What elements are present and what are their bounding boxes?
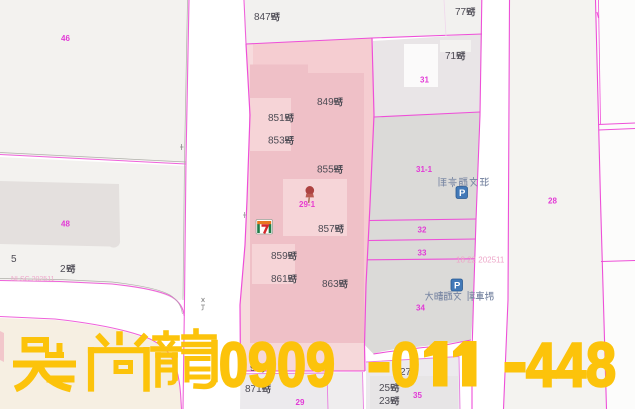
svg-text:857: 857 [318,224,335,235]
svg-text:847: 847 [254,12,271,23]
svg-text:48: 48 [61,220,70,229]
svg-text:2: 2 [60,264,66,275]
svg-text:71: 71 [445,51,457,62]
svg-text:NLSC 202511: NLSC 202511 [11,276,55,283]
svg-text:859: 859 [271,251,288,262]
svg-text:P: P [454,281,461,292]
svg-text:855: 855 [317,165,334,176]
svg-text:29-1: 29-1 [299,200,316,209]
svg-text:33: 33 [418,249,427,258]
svg-text:25: 25 [379,383,391,394]
svg-text:31-1: 31-1 [416,165,433,174]
svg-text:0: 0 [391,331,420,400]
svg-text:34: 34 [416,304,425,313]
svg-text:853: 853 [268,136,285,147]
svg-text:31: 31 [420,76,429,85]
svg-text:32: 32 [418,226,427,235]
svg-text:28: 28 [548,197,557,206]
svg-text:77: 77 [455,7,467,18]
svg-text:46: 46 [61,34,70,43]
svg-text:0909: 0909 [219,331,335,400]
svg-text:851: 851 [268,113,285,124]
svg-text:863: 863 [322,279,339,290]
svg-text:P: P [459,188,466,199]
svg-text:448: 448 [526,331,616,400]
svg-text:18 22 202511: 18 22 202511 [456,256,505,265]
svg-text:5: 5 [11,254,17,265]
svg-text:861: 861 [271,274,288,285]
svg-text:23: 23 [379,396,391,407]
svg-text:849: 849 [317,97,334,108]
